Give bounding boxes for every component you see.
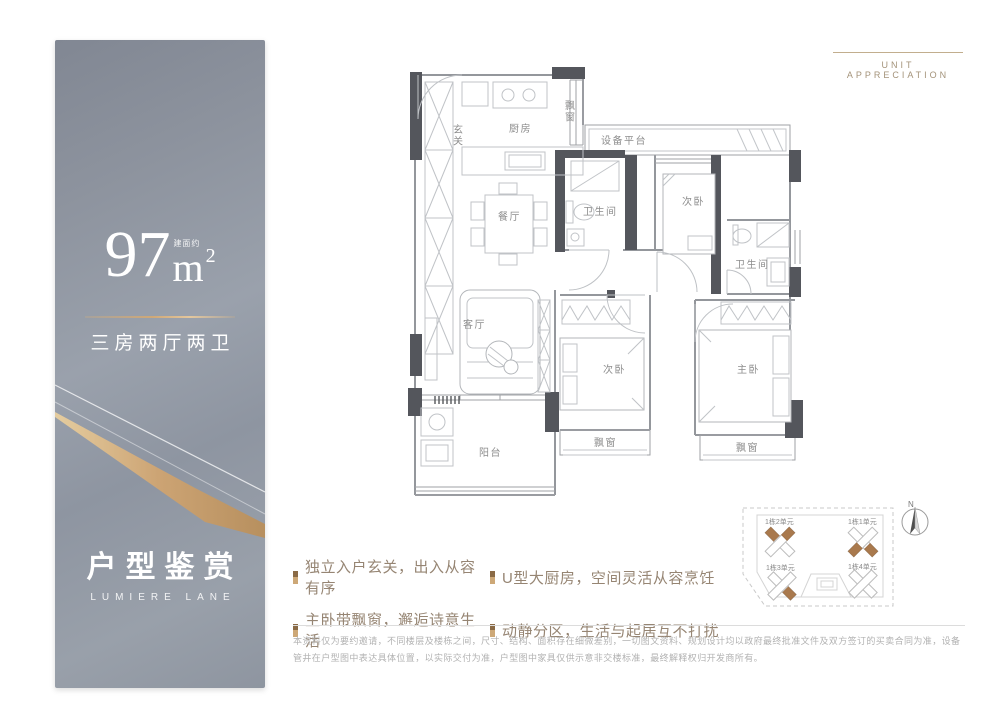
siteplan-building-cluster: [765, 527, 795, 557]
siteplan-unit-label: 1栋3单元: [766, 563, 795, 572]
room-label-dining: 餐厅: [498, 210, 521, 223]
siteplan-unit-label: 1栋2单元: [765, 517, 794, 526]
room-label-living: 客厅: [463, 318, 486, 331]
siteplan-building-cluster: [849, 570, 877, 598]
area-figure: 97 建面约 m 2: [55, 222, 265, 288]
area-prefix: 建面约: [173, 238, 200, 249]
room-label-bedroom-top: 次卧: [682, 195, 705, 208]
feature-text: U型大厨房，空间灵活从容烹饪: [502, 567, 715, 588]
area-exponent: 2: [206, 246, 216, 266]
siteplan-building-cluster: [768, 572, 796, 600]
caption-rule: [833, 52, 963, 53]
panel-deco-lines: [55, 40, 265, 688]
feature-item: 独立入户玄关，出入从容有序: [293, 556, 490, 598]
room-label-master: 主卧: [737, 363, 760, 376]
feature-item: U型大厨房，空间灵活从容烹饪: [490, 556, 719, 598]
unit-appreciation-caption: UNIT APPRECIATION: [833, 52, 963, 80]
room-label-bay-mid: 飘窗: [594, 436, 617, 449]
compass-icon: N: [902, 500, 928, 535]
room-label-equipment: 设备平台: [601, 134, 647, 147]
room-label-kitchen: 厨房: [509, 122, 532, 135]
feature-bullet-icon: [490, 571, 495, 584]
room-label-bath2: 卫生间: [735, 258, 770, 271]
gold-divider: [85, 316, 235, 318]
room-label-entry: 玄关: [451, 123, 463, 147]
siteplan-unit-label: 1栋4单元: [848, 562, 877, 571]
siteplan-unit-label: 1栋1单元: [848, 517, 877, 526]
room-label-bay-kitchen: 飘窗: [563, 100, 575, 123]
panel-subtitle: LUMIERE LANE: [55, 592, 265, 603]
disclaimer-text: 本资料仅为要约邀请，不同楼层及楼栋之间，尺寸、结构、面积存在细微差别，一切图文资…: [293, 625, 965, 667]
panel-title: 户型鉴赏: [55, 542, 265, 586]
floorplan-drawing: 玄关 厨房 飘窗 设备平台 次卧 卫生间 餐厅 卫生间 客厅 次卧 主卧 阳台 …: [405, 62, 835, 502]
poster-canvas: 97 建面约 m 2 三房两厅两卫 户型鉴赏 LUMIERE LANE UNIT…: [0, 0, 1000, 710]
room-label-bedroom-mid: 次卧: [603, 363, 626, 376]
room-label-bath1: 卫生间: [583, 205, 618, 218]
room-label-balcony: 阳台: [479, 446, 502, 459]
layout-text: 三房两厅两卫: [55, 328, 265, 355]
area-unit: m: [172, 245, 203, 290]
compass-label: N: [908, 500, 914, 509]
info-panel: 97 建面约 m 2 三房两厅两卫 户型鉴赏 LUMIERE LANE: [55, 40, 265, 688]
siteplan-map: 1栋2单元 1栋1单元 1栋3单元 1栋4单元 N: [735, 498, 975, 623]
siteplan-building-cluster: [848, 527, 878, 557]
feature-bullet-icon: [293, 571, 298, 584]
feature-text: 独立入户玄关，出入从容有序: [305, 556, 490, 598]
room-label-bay-master: 飘窗: [736, 441, 759, 454]
area-value: 97: [104, 222, 170, 288]
caption-text: UNIT APPRECIATION: [833, 60, 963, 80]
area-unit-wrap: 建面约 m: [172, 248, 203, 288]
